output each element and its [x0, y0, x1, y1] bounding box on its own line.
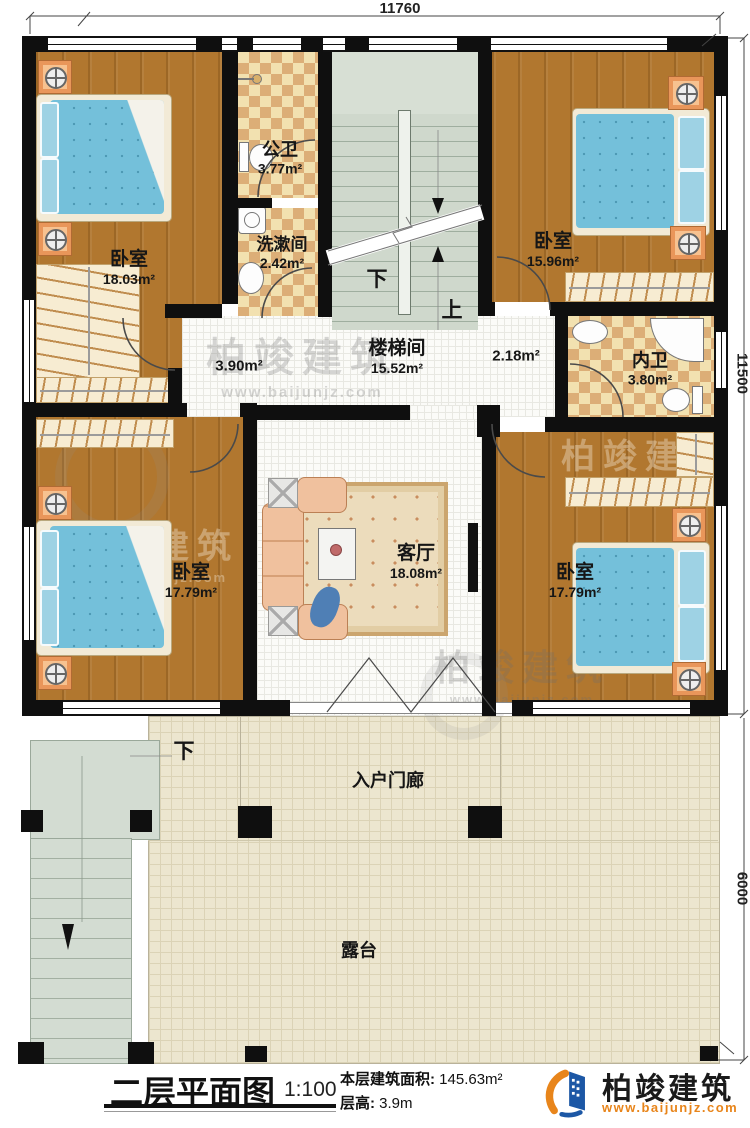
floor-height-value: 3.9m: [379, 1095, 412, 1112]
room-name: 内卫: [628, 351, 672, 372]
brand-website-text: www.baijunjz.com: [602, 1100, 738, 1115]
floor-height-line: 层高: 3.9m: [340, 1092, 413, 1113]
label-living-room: 客厅 18.08m²: [390, 543, 442, 581]
room-name: 楼梯间: [368, 338, 425, 360]
stair-direction: 下: [367, 268, 388, 291]
dim-right-upper-value: 11500: [734, 353, 750, 394]
room-name: 公卫: [258, 140, 302, 161]
label-bedroom-top-right: 卧室 15.96m²: [527, 231, 579, 269]
brand-website: www.baijunjz.com: [602, 1100, 738, 1115]
dim-top: 11760: [345, 0, 455, 17]
room-area: 15.52m²: [368, 360, 425, 376]
label-terrace: 露台: [341, 941, 377, 962]
label-inner-bath: 内卫 3.80m²: [628, 351, 672, 388]
title-underline-thin: [104, 1111, 336, 1112]
floor-area-value: 145.63m²: [439, 1071, 502, 1088]
label-stair-hall: 楼梯间 15.52m²: [368, 338, 425, 376]
floor-area-line: 本层建筑面积: 145.63m²: [340, 1068, 503, 1089]
label-bedroom-bottom-left: 卧室 17.79m²: [165, 562, 217, 600]
floor-height-label: 层高:: [340, 1095, 375, 1112]
room-name: 入户门廊: [352, 771, 424, 792]
stair-direction: 上: [442, 299, 463, 322]
plan-scale-text: 1:100: [284, 1078, 337, 1101]
label-hall-left-area: 3.90m²: [215, 357, 263, 374]
label-public-bath: 公卫 3.77m²: [258, 140, 302, 177]
room-area: 17.79m²: [165, 584, 217, 600]
room-area: 3.77m²: [258, 160, 302, 176]
room-area: 3.90m²: [215, 357, 263, 374]
room-area: 2.18m²: [492, 347, 540, 364]
label-washroom: 洗漱间 2.42m²: [257, 235, 308, 271]
room-name: 卧室: [165, 562, 217, 584]
room-area: 15.96m²: [527, 253, 579, 269]
room-name: 卧室: [103, 249, 155, 271]
room-area: 18.08m²: [390, 565, 442, 581]
room-area: 17.79m²: [549, 584, 601, 600]
floor-area-label: 本层建筑面积:: [340, 1071, 435, 1088]
room-name: 卧室: [549, 562, 601, 584]
dim-top-value: 11760: [380, 0, 421, 17]
dim-right-upper: 11500: [734, 329, 750, 419]
label-porch-stair-down: 下: [174, 740, 195, 764]
room-name: 客厅: [390, 543, 442, 565]
room-name: 露台: [341, 941, 377, 962]
title-underline-thick: [104, 1104, 336, 1108]
floor-plan-canvas: 柏竣建筑 www.baijunjz.com 柏竣建筑 www.baijunjz.…: [0, 0, 750, 1128]
label-hall-right-area: 2.18m²: [492, 347, 540, 364]
room-area: 18.03m²: [103, 271, 155, 287]
dim-right-lower: 6000: [734, 859, 750, 919]
label-stair-up: 上: [442, 299, 463, 323]
label-bedroom-top-left: 卧室 18.03m²: [103, 249, 155, 287]
room-name: 洗漱间: [257, 235, 308, 255]
room-area: 2.42m²: [257, 255, 308, 271]
plan-scale: 1:100: [284, 1078, 337, 1102]
room-name: 卧室: [527, 231, 579, 253]
dim-right-lower-value: 6000: [734, 872, 750, 905]
brand-logo-icon: [543, 1064, 599, 1118]
label-stair-down: 下: [367, 268, 388, 292]
label-porch: 入户门廊: [352, 771, 424, 792]
label-bedroom-bottom-right: 卧室 17.79m²: [549, 562, 601, 600]
stair-direction: 下: [174, 740, 195, 763]
room-area: 3.80m²: [628, 371, 672, 387]
